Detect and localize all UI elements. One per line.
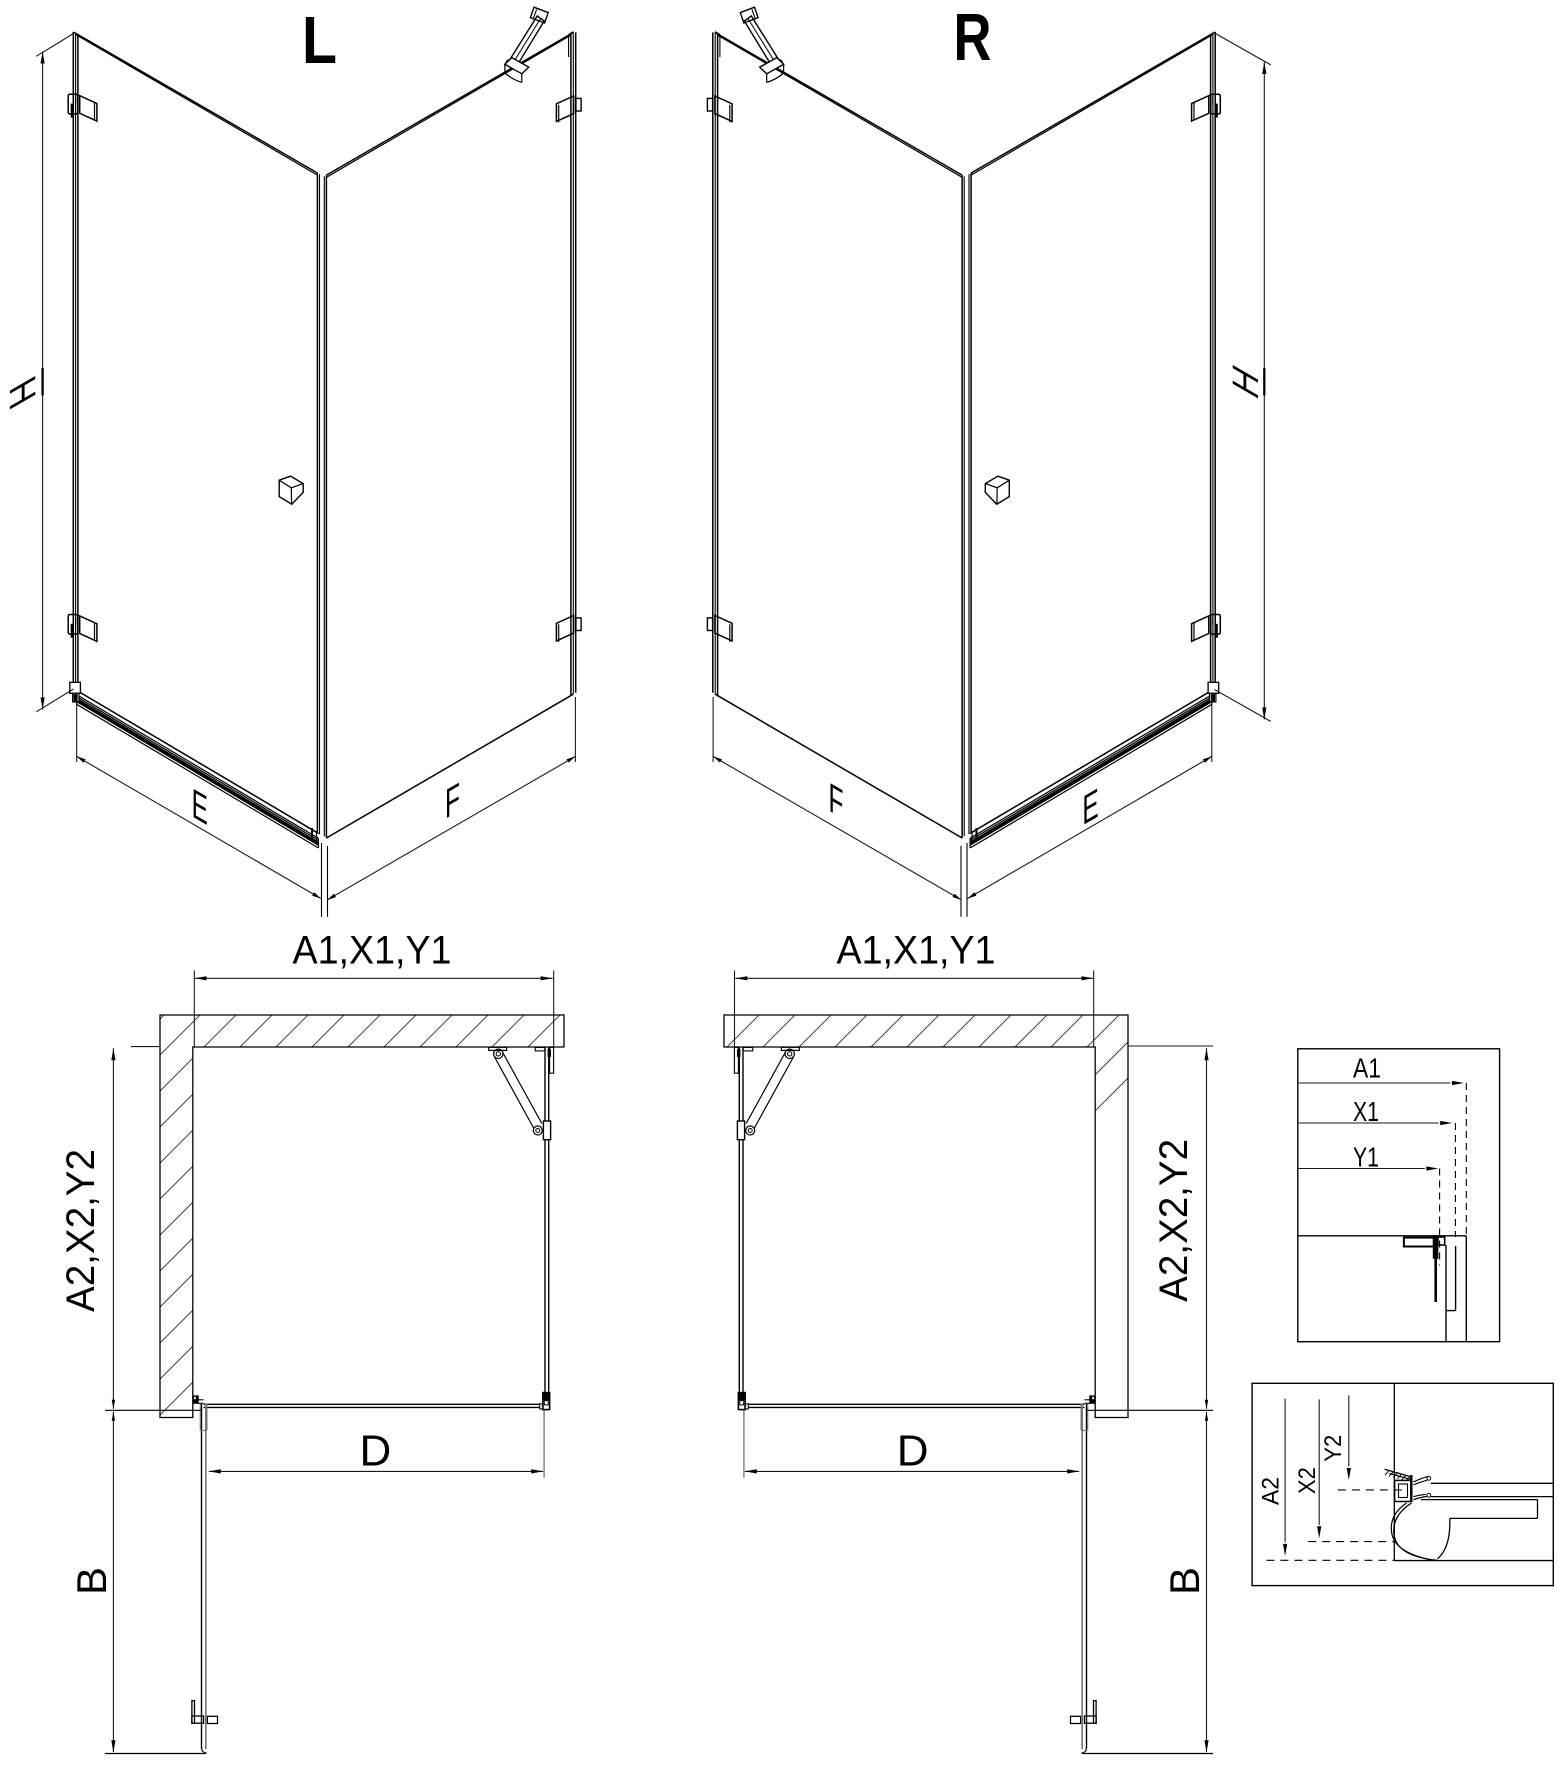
svg-text:B: B [1161,1567,1208,1595]
svg-text:E: E [192,780,208,835]
svg-text:A1: A1 [1353,1053,1381,1084]
svg-text:A2: A2 [1258,1477,1285,1505]
svg-text:D: D [897,1427,929,1476]
svg-text:F: F [445,774,460,828]
svg-text:R: R [954,0,992,75]
svg-text:X2: X2 [1294,1467,1321,1494]
svg-text:A1,X1,Y1: A1,X1,Y1 [837,929,996,973]
svg-text:F: F [829,774,844,828]
svg-text:A1,X1,Y1: A1,X1,Y1 [293,929,452,973]
svg-text:Y1: Y1 [1353,1142,1379,1173]
svg-text:D: D [360,1427,392,1476]
svg-text:L: L [302,3,337,78]
svg-text:A2,X2,Y2: A2,X2,Y2 [59,1149,103,1312]
svg-text:A2,X2,Y2: A2,X2,Y2 [1152,1139,1196,1302]
svg-text:X1: X1 [1353,1096,1379,1127]
svg-text:E: E [1082,780,1098,835]
svg-text:B: B [68,1567,115,1595]
svg-text:Y2: Y2 [1320,1435,1347,1462]
